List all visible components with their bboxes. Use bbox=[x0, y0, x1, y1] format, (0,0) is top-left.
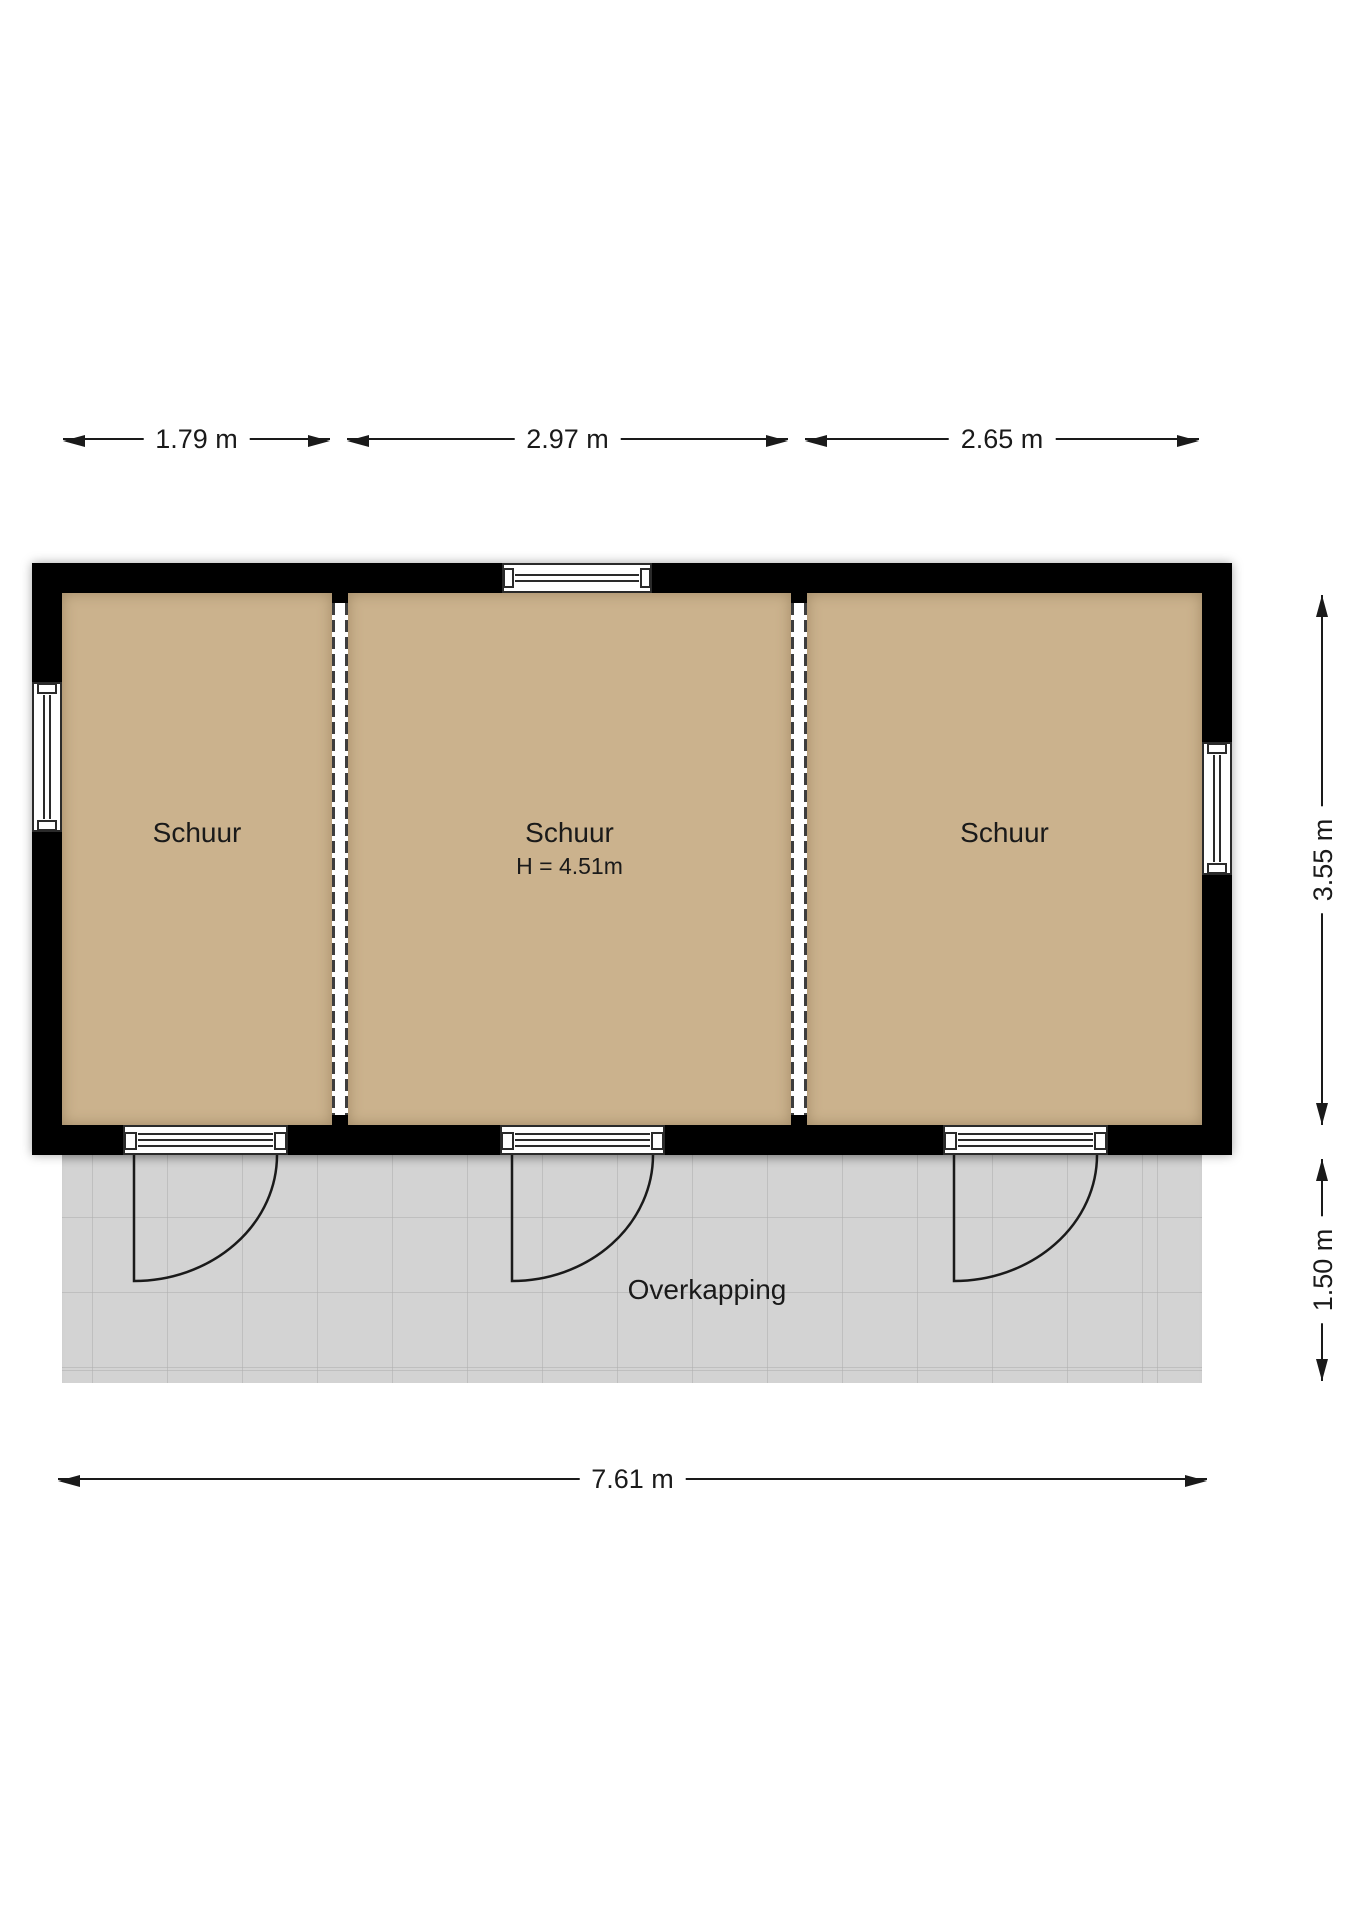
room-label: Schuur bbox=[153, 816, 242, 849]
partition-1 bbox=[332, 603, 348, 1115]
door-jamb bbox=[651, 1132, 664, 1150]
window-glazing bbox=[43, 695, 51, 819]
door-jamb bbox=[501, 1132, 514, 1150]
dimension-label: 2.65 m bbox=[949, 422, 1056, 456]
arrow-right-icon bbox=[1177, 435, 1199, 447]
partition-2-stub-top bbox=[791, 593, 807, 603]
wall-left-upper bbox=[32, 563, 62, 682]
room-label: Schuur bbox=[960, 816, 1049, 849]
dimension-right-height: 3.55 m bbox=[1321, 595, 1323, 1125]
wall-left-lower bbox=[32, 832, 62, 1155]
wall-right-upper bbox=[1202, 563, 1232, 742]
arrow-down-icon bbox=[1316, 1103, 1328, 1125]
arrow-up-icon bbox=[1316, 595, 1328, 617]
arrow-right-icon bbox=[1185, 1475, 1207, 1487]
building: Schuur Schuur H = 4.51m Schuur bbox=[32, 563, 1232, 1155]
door-sill-2 bbox=[500, 1125, 665, 1155]
dimension-label: 3.55 m bbox=[1306, 807, 1340, 914]
door-swing-1 bbox=[123, 1155, 289, 1287]
wall-right-lower bbox=[1202, 875, 1232, 1155]
room-schuur-2: Schuur H = 4.51m bbox=[348, 593, 791, 1125]
dimension-top-room1: 1.79 m bbox=[63, 438, 330, 440]
partition-dash bbox=[791, 603, 794, 1115]
wall-bottom-3 bbox=[665, 1125, 943, 1155]
window-glazing bbox=[1213, 755, 1221, 862]
window-right bbox=[1202, 742, 1232, 875]
window-frame-cap bbox=[37, 820, 57, 831]
window-glazing bbox=[515, 574, 639, 582]
arrow-left-icon bbox=[347, 435, 369, 447]
arrow-down-icon bbox=[1316, 1359, 1328, 1381]
door-sill-lines bbox=[138, 1133, 273, 1147]
door-sill-3 bbox=[943, 1125, 1108, 1155]
dimension-top-room2: 2.97 m bbox=[347, 438, 788, 440]
door-swing-2 bbox=[500, 1155, 666, 1287]
dimension-label: 7.61 m bbox=[579, 1462, 686, 1496]
dimension-right-canopy: 1.50 m bbox=[1321, 1159, 1323, 1381]
partition-2-stub-bottom bbox=[791, 1115, 807, 1125]
room-label: Schuur bbox=[525, 816, 614, 849]
window-top bbox=[502, 563, 652, 593]
wall-bottom-4 bbox=[1108, 1125, 1232, 1155]
arrow-left-icon bbox=[63, 435, 85, 447]
partition-2 bbox=[791, 603, 807, 1115]
room-ceiling-height: H = 4.51m bbox=[516, 853, 623, 880]
partition-dash bbox=[804, 603, 807, 1115]
door-jamb bbox=[124, 1132, 137, 1150]
arrow-up-icon bbox=[1316, 1159, 1328, 1181]
window-frame-cap bbox=[503, 568, 514, 588]
door-jamb bbox=[1094, 1132, 1107, 1150]
partition-dash bbox=[345, 603, 348, 1115]
floorplan-page: 1.79 m 2.97 m 2.65 m Overkapping Schuur … bbox=[0, 0, 1358, 1920]
dimension-label: 1.50 m bbox=[1306, 1217, 1340, 1324]
wall-top-left bbox=[32, 563, 502, 593]
arrow-left-icon bbox=[58, 1475, 80, 1487]
door-sill-lines bbox=[958, 1133, 1093, 1147]
wall-bottom-2 bbox=[288, 1125, 500, 1155]
window-left bbox=[32, 682, 62, 832]
door-sill-1 bbox=[123, 1125, 288, 1155]
dimension-label: 2.97 m bbox=[514, 422, 621, 456]
window-frame-cap bbox=[1207, 863, 1227, 874]
door-jamb bbox=[274, 1132, 287, 1150]
arrow-right-icon bbox=[766, 435, 788, 447]
dimension-top-room3: 2.65 m bbox=[805, 438, 1199, 440]
dimension-bottom-total: 7.61 m bbox=[58, 1478, 1207, 1480]
door-jamb bbox=[944, 1132, 957, 1150]
door-sill-lines bbox=[515, 1133, 650, 1147]
arrow-left-icon bbox=[805, 435, 827, 447]
dimension-label: 1.79 m bbox=[143, 422, 250, 456]
partition-dash bbox=[332, 603, 335, 1115]
door-swing-3 bbox=[943, 1155, 1109, 1287]
room-schuur-1: Schuur bbox=[62, 593, 332, 1125]
window-frame-cap bbox=[1207, 743, 1227, 754]
wall-bottom-1 bbox=[32, 1125, 123, 1155]
window-frame-cap bbox=[640, 568, 651, 588]
window-frame-cap bbox=[37, 683, 57, 694]
room-schuur-3: Schuur bbox=[807, 593, 1202, 1125]
partition-1-stub-top bbox=[332, 593, 348, 603]
arrow-right-icon bbox=[308, 435, 330, 447]
wall-top-right bbox=[652, 563, 1232, 593]
partition-1-stub-bottom bbox=[332, 1115, 348, 1125]
